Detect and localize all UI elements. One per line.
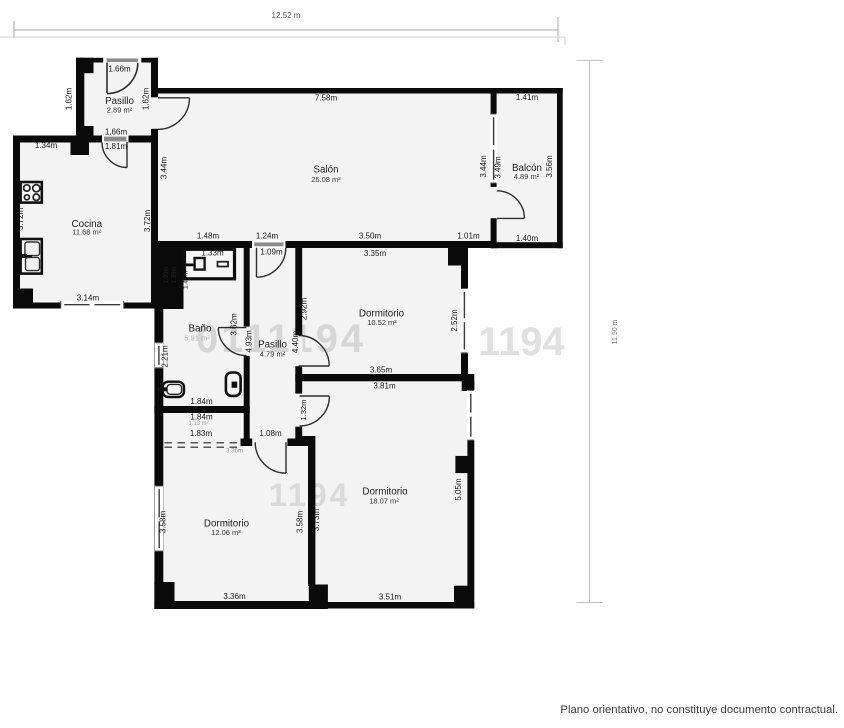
- svg-text:1.66m: 1.66m: [108, 65, 131, 74]
- svg-text:4.93m: 4.93m: [245, 330, 254, 353]
- svg-text:1.24m: 1.24m: [256, 232, 279, 241]
- svg-text:3.44m: 3.44m: [479, 155, 488, 178]
- svg-text:3.65m: 3.65m: [370, 366, 393, 375]
- svg-text:1.01m: 1.01m: [457, 232, 480, 241]
- svg-text:3.58m: 3.58m: [159, 511, 168, 534]
- svg-text:1.35m: 1.35m: [172, 267, 178, 284]
- svg-text:2.92m: 2.92m: [300, 298, 309, 321]
- svg-text:1.81m: 1.81m: [105, 142, 128, 151]
- svg-text:3.36m: 3.36m: [226, 449, 243, 455]
- svg-text:1.48m: 1.48m: [197, 232, 220, 241]
- svg-text:18.07 m²: 18.07 m²: [369, 497, 399, 506]
- svg-text:26.08 m²: 26.08 m²: [311, 175, 341, 184]
- svg-text:1194: 1194: [478, 320, 566, 364]
- svg-text:12.52 m: 12.52 m: [272, 11, 301, 20]
- svg-text:3.81m: 3.81m: [373, 382, 396, 391]
- svg-text:10.52 m²: 10.52 m²: [367, 318, 397, 327]
- svg-text:11.68 m²: 11.68 m²: [72, 228, 102, 237]
- svg-text:3.73m: 3.73m: [312, 509, 321, 532]
- svg-text:5.05m: 5.05m: [454, 478, 463, 501]
- svg-text:3.51m: 3.51m: [379, 593, 402, 602]
- svg-text:2.52m: 2.52m: [450, 309, 459, 332]
- svg-text:7.58m: 7.58m: [315, 94, 338, 103]
- svg-text:1.34m: 1.34m: [35, 141, 58, 150]
- svg-text:12.06 m²: 12.06 m²: [211, 528, 241, 537]
- svg-text:1.32m: 1.32m: [299, 400, 308, 421]
- svg-text:1.33m: 1.33m: [201, 249, 224, 258]
- svg-text:1.41m: 1.41m: [516, 93, 539, 102]
- svg-text:3.14m: 3.14m: [77, 294, 100, 303]
- svg-text:1.08m: 1.08m: [259, 429, 282, 438]
- svg-text:4.79 m²: 4.79 m²: [260, 350, 286, 359]
- svg-text:1.66m: 1.66m: [105, 128, 128, 137]
- svg-text:4.89 m²: 4.89 m²: [514, 172, 540, 181]
- svg-text:3.36m: 3.36m: [223, 592, 246, 601]
- svg-text:1.62m: 1.62m: [65, 88, 74, 111]
- svg-text:2.21m: 2.21m: [161, 345, 170, 368]
- svg-text:1.40m: 1.40m: [182, 271, 189, 289]
- svg-text:3.50m: 3.50m: [359, 232, 382, 241]
- svg-text:3.49m: 3.49m: [494, 156, 503, 179]
- svg-text:11.50 m: 11.50 m: [612, 319, 619, 344]
- svg-text:3.44m: 3.44m: [160, 157, 169, 180]
- svg-text:Plano orientativo, no constitu: Plano orientativo, no constituye documen…: [560, 704, 838, 716]
- svg-text:3.56m: 3.56m: [545, 155, 554, 178]
- svg-text:1.09m: 1.09m: [260, 248, 283, 257]
- svg-text:3.58m: 3.58m: [296, 511, 305, 534]
- svg-text:3.35m: 3.35m: [364, 249, 387, 258]
- svg-text:3.72m: 3.72m: [143, 210, 152, 233]
- svg-text:2.89 m²: 2.89 m²: [107, 106, 133, 115]
- svg-text:1.83m: 1.83m: [190, 429, 213, 438]
- svg-text:3.72m: 3.72m: [16, 208, 25, 231]
- svg-text:1.13 m²: 1.13 m²: [188, 421, 208, 427]
- svg-text:Salón: Salón: [313, 165, 338, 176]
- svg-text:3.62m: 3.62m: [230, 313, 239, 336]
- svg-text:1.84m: 1.84m: [190, 397, 213, 406]
- svg-text:4.40m: 4.40m: [291, 331, 300, 354]
- svg-text:5.91 m²: 5.91 m²: [184, 334, 210, 343]
- svg-text:1.40m: 1.40m: [516, 234, 539, 243]
- svg-text:1.93m: 1.93m: [164, 267, 170, 284]
- svg-text:1.62m: 1.62m: [142, 88, 151, 111]
